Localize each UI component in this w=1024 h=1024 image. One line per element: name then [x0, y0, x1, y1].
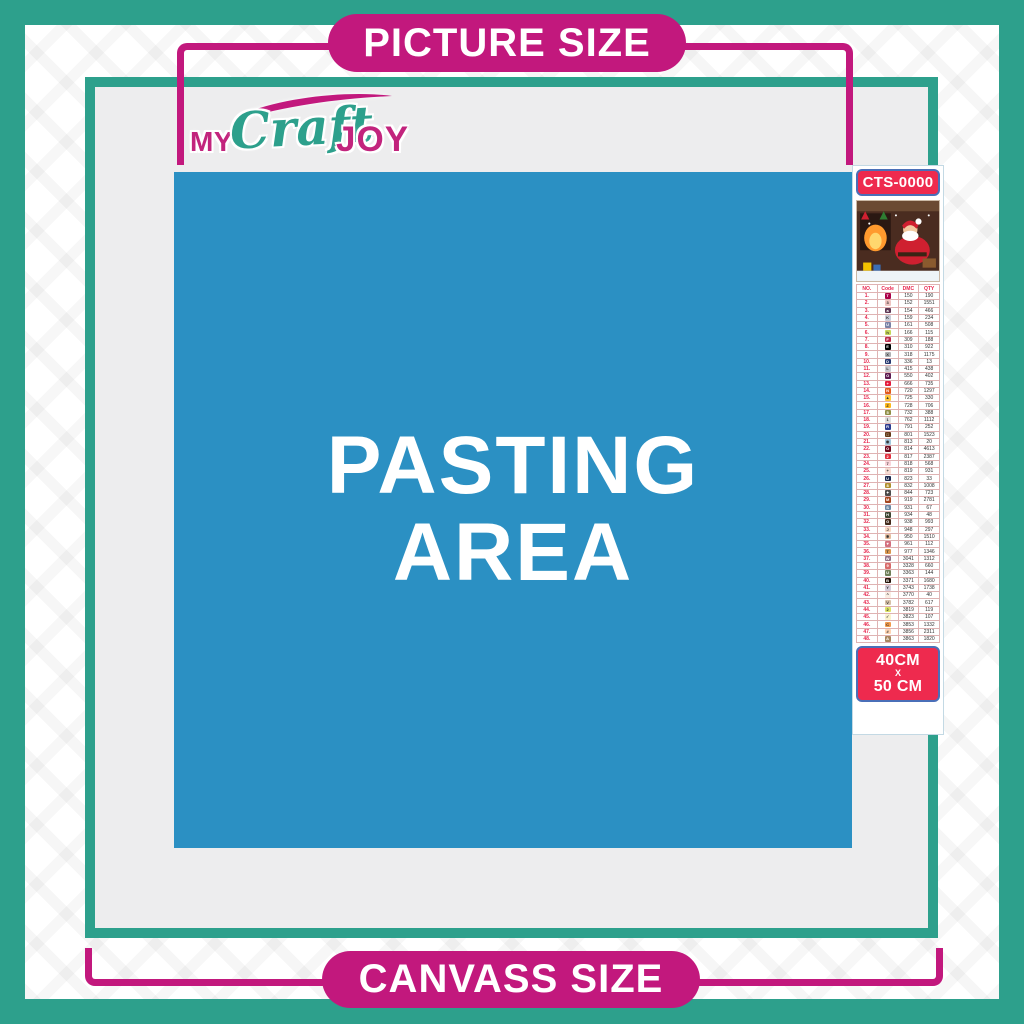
color-symbol-swatch: 7 [885, 461, 891, 467]
dmc-code: 309 [898, 336, 919, 343]
row-number: 27. [857, 482, 878, 489]
row-number: 41. [857, 584, 878, 591]
col-header-code: Code [877, 285, 898, 293]
picture-size-label: PICTURE SIZE [363, 21, 651, 66]
table-row: 45.✓3823107 [857, 614, 940, 621]
color-symbol-swatch: G [885, 519, 891, 525]
table-row: 17.5732388 [857, 409, 940, 416]
color-symbol-swatch: O [885, 446, 891, 452]
picture-size-banner: PICTURE SIZE [328, 14, 686, 72]
symbol-cell: U [877, 322, 898, 329]
symbol-cell: V [877, 599, 898, 606]
dmc-code: 415 [898, 365, 919, 372]
row-number: 1. [857, 293, 878, 300]
symbol-cell: F [877, 336, 898, 343]
table-row: 25.+819931 [857, 468, 940, 475]
row-number: 21. [857, 438, 878, 445]
table-row: 35.♥961112 [857, 541, 940, 548]
row-number: 2. [857, 300, 878, 307]
symbol-cell: T [877, 548, 898, 555]
symbol-cell: 9 [877, 562, 898, 569]
color-symbol-swatch: a [885, 308, 891, 314]
row-number: 17. [857, 409, 878, 416]
row-number: 47. [857, 628, 878, 635]
row-number: 3. [857, 307, 878, 314]
quantity-value: 1820 [919, 635, 940, 642]
dmc-code: 3856 [898, 628, 919, 635]
color-symbol-swatch: J [885, 527, 891, 533]
symbol-cell: N [877, 387, 898, 394]
symbol-cell: 1 [877, 417, 898, 424]
dmc-code: 813 [898, 438, 919, 445]
row-number: 7. [857, 336, 878, 343]
dmc-code: 801 [898, 431, 919, 438]
table-row: 4.K159234 [857, 314, 940, 321]
quantity-value: 1346 [919, 548, 940, 555]
quantity-value: 297 [919, 526, 940, 533]
table-row: 15.▲725330 [857, 395, 940, 402]
dmc-code: 318 [898, 351, 919, 358]
symbol-cell: K [877, 314, 898, 321]
table-row: 2.31521551 [857, 300, 940, 307]
dmc-code: 3853 [898, 621, 919, 628]
symbol-cell: S [877, 504, 898, 511]
pasting-area-line2: AREA [393, 510, 633, 597]
table-row: 46.C38531332 [857, 621, 940, 628]
symbol-cell: + [877, 468, 898, 475]
table-row: 38.93328660 [857, 562, 940, 569]
quantity-value: 190 [919, 293, 940, 300]
color-symbol-swatch: S [885, 505, 891, 511]
quantity-value: 1738 [919, 584, 940, 591]
row-number: 18. [857, 417, 878, 424]
color-symbol-swatch: Y [885, 585, 891, 591]
color-symbol-swatch: U [885, 322, 891, 328]
row-number: 24. [857, 460, 878, 467]
row-number: 28. [857, 490, 878, 497]
row-number: 46. [857, 621, 878, 628]
dmc-code: 823 [898, 475, 919, 482]
dmc-code: 919 [898, 497, 919, 504]
quantity-value: 48 [919, 511, 940, 518]
quantity-value: 1112 [919, 417, 940, 424]
symbol-cell: U [877, 475, 898, 482]
table-row: 18.17621112 [857, 417, 940, 424]
symbol-cell: ✱ [877, 533, 898, 540]
quantity-value: 144 [919, 570, 940, 577]
dmc-code: 3819 [898, 606, 919, 613]
row-number: 12. [857, 373, 878, 380]
dmc-code: 152 [898, 300, 919, 307]
table-row: 33.J948297 [857, 526, 940, 533]
color-symbol-swatch: □ [885, 432, 891, 438]
quantity-value: 2781 [919, 497, 940, 504]
color-symbol-swatch: ^ [885, 592, 891, 598]
color-symbol-swatch: h [885, 330, 891, 336]
quantity-value: 735 [919, 380, 940, 387]
row-number: 43. [857, 599, 878, 606]
color-symbol-swatch: H [885, 512, 891, 518]
symbol-cell: a [877, 307, 898, 314]
quantity-value: 466 [919, 307, 940, 314]
row-number: 14. [857, 387, 878, 394]
quantity-value: 1680 [919, 577, 940, 584]
color-symbol-swatch: 9 [885, 563, 891, 569]
symbol-cell: R [877, 424, 898, 431]
color-symbol-swatch: V [885, 600, 891, 606]
color-symbol-swatch: M [885, 497, 891, 503]
symbol-cell: B [877, 577, 898, 584]
row-number: 15. [857, 395, 878, 402]
quantity-value: 1008 [919, 482, 940, 489]
color-symbol-swatch: W [885, 556, 891, 562]
table-row: 42.^377040 [857, 592, 940, 599]
color-symbol-swatch: ▲ [885, 395, 891, 401]
row-number: 16. [857, 402, 878, 409]
dmc-code: 3823 [898, 614, 919, 621]
color-symbol-swatch: L [885, 366, 891, 372]
color-symbol-swatch: ◉ [885, 439, 891, 445]
row-number: 10. [857, 358, 878, 365]
color-symbol-swatch: B [885, 578, 891, 584]
color-symbol-swatch: ✱ [885, 534, 891, 540]
quantity-value: 402 [919, 373, 940, 380]
canvass-size-label: CANVASS SIZE [359, 957, 664, 1002]
quantity-value: 922 [919, 344, 940, 351]
table-row: 47.#38562311 [857, 628, 940, 635]
dmc-code: 818 [898, 460, 919, 467]
dmc-code: 3328 [898, 562, 919, 569]
row-number: 11. [857, 365, 878, 372]
dmc-code: 732 [898, 409, 919, 416]
col-header-qty: QTY [919, 285, 940, 293]
quantity-value: 67 [919, 504, 940, 511]
symbol-cell: ✓ [877, 614, 898, 621]
table-row: 16.Z728706 [857, 402, 940, 409]
dmc-code: 832 [898, 482, 919, 489]
symbol-cell: A [877, 635, 898, 642]
row-number: 23. [857, 453, 878, 460]
quantity-value: 107 [919, 614, 940, 621]
dmc-code: 3770 [898, 592, 919, 599]
quantity-value: 234 [919, 314, 940, 321]
table-row: 36.T9771346 [857, 548, 940, 555]
symbol-cell: J [877, 526, 898, 533]
size-line2: 50 CM [858, 678, 938, 695]
color-symbol-swatch: O [885, 373, 891, 379]
color-symbol-swatch: Z [885, 403, 891, 409]
color-symbol-swatch: R [885, 424, 891, 430]
table-row: 1.T150190 [857, 293, 940, 300]
row-number: 31. [857, 511, 878, 518]
symbol-cell: 2 [877, 453, 898, 460]
mycraftjoy-logo: MY Craft JOY [184, 96, 414, 172]
dmc-code: 166 [898, 329, 919, 336]
quantity-value: 115 [919, 329, 940, 336]
col-header-dmc: DMC [898, 285, 919, 293]
row-number: 19. [857, 424, 878, 431]
quantity-value: 40 [919, 592, 940, 599]
color-symbol-swatch: 1 [885, 417, 891, 423]
table-row: 6.h166115 [857, 329, 940, 336]
symbol-cell: Z [877, 402, 898, 409]
row-number: 35. [857, 541, 878, 548]
color-symbol-swatch: A [885, 636, 891, 642]
color-symbol-swatch: 2 [885, 454, 891, 460]
symbol-cell: + [877, 380, 898, 387]
dmc-color-table: NO. Code DMC QTY 1.T1501902.315215513.a1… [856, 284, 940, 643]
dmc-code: 814 [898, 446, 919, 453]
table-row: 19.R791252 [857, 424, 940, 431]
quantity-value: 1523 [919, 431, 940, 438]
table-row: 5.U161508 [857, 322, 940, 329]
row-number: 6. [857, 329, 878, 336]
sku-badge: CTS-0000 [856, 169, 940, 196]
symbol-cell: O [877, 446, 898, 453]
color-symbol-swatch: D [885, 359, 891, 365]
color-symbol-swatch: 8 [885, 483, 891, 489]
row-number: 4. [857, 314, 878, 321]
color-symbol-swatch: T [885, 549, 891, 555]
row-number: 42. [857, 592, 878, 599]
row-number: 9. [857, 351, 878, 358]
dmc-code: 977 [898, 548, 919, 555]
table-row: 3.a154466 [857, 307, 940, 314]
quantity-value: 1297 [919, 387, 940, 394]
row-number: 48. [857, 635, 878, 642]
table-header-row: NO. Code DMC QTY [857, 285, 940, 293]
table-row: 48.A38631820 [857, 635, 940, 642]
santa-scene-icon [857, 201, 939, 281]
table-row: 39.U3363144 [857, 570, 940, 577]
symbol-cell: W [877, 555, 898, 562]
canvas-size-badge: 40CM X 50 CM [856, 646, 940, 702]
size-line1: 40CM [858, 652, 938, 669]
table-row: 30.S93167 [857, 504, 940, 511]
dmc-code: 725 [898, 395, 919, 402]
logo-text-my: MY [190, 126, 233, 158]
row-number: 30. [857, 504, 878, 511]
table-row: 22.O8144613 [857, 446, 940, 453]
dmc-code: 3371 [898, 577, 919, 584]
symbol-cell: E [877, 344, 898, 351]
symbol-cell: Y [877, 584, 898, 591]
quantity-value: 2387 [919, 453, 940, 460]
quantity-value: 2311 [919, 628, 940, 635]
row-number: 33. [857, 526, 878, 533]
table-row: 10.D33613 [857, 358, 940, 365]
color-symbol-swatch: K [885, 315, 891, 321]
quantity-value: 388 [919, 409, 940, 416]
dmc-code: 931 [898, 504, 919, 511]
table-row: 9.X3181175 [857, 351, 940, 358]
quantity-value: 993 [919, 519, 940, 526]
color-chart-sidebar: CTS-0000 NO. [852, 165, 944, 735]
dmc-code: 720 [898, 387, 919, 394]
dmc-code: 791 [898, 424, 919, 431]
quantity-value: 617 [919, 599, 940, 606]
row-number: 32. [857, 519, 878, 526]
color-symbol-swatch: U [885, 476, 891, 482]
table-row: 8.E310922 [857, 344, 940, 351]
row-number: 40. [857, 577, 878, 584]
dmc-code: 817 [898, 453, 919, 460]
symbol-cell: M [877, 497, 898, 504]
symbol-cell: D [877, 358, 898, 365]
dmc-code: 161 [898, 322, 919, 329]
symbol-cell: 8 [877, 482, 898, 489]
dmc-code: 762 [898, 417, 919, 424]
symbol-cell: ♥ [877, 541, 898, 548]
color-symbol-swatch: ✓ [885, 614, 891, 620]
symbol-cell: 2 [877, 606, 898, 613]
symbol-cell: ◉ [877, 438, 898, 445]
table-row: 24.7818568 [857, 460, 940, 467]
symbol-cell: 7 [877, 460, 898, 467]
quantity-value: 188 [919, 336, 940, 343]
table-row: 12.O550402 [857, 373, 940, 380]
quantity-value: 119 [919, 606, 940, 613]
symbol-cell: G [877, 519, 898, 526]
table-row: 21.◉81320 [857, 438, 940, 445]
symbol-cell: □ [877, 431, 898, 438]
color-symbol-swatch: T [885, 293, 891, 299]
quantity-value: 568 [919, 460, 940, 467]
dmc-code: 550 [898, 373, 919, 380]
table-row: 11.L415438 [857, 365, 940, 372]
quantity-value: 4613 [919, 446, 940, 453]
quantity-value: 330 [919, 395, 940, 402]
row-number: 34. [857, 533, 878, 540]
dmc-code: 728 [898, 402, 919, 409]
product-template-page: { "banners": { "top": "PICTURE SIZE", "b… [0, 0, 1024, 1024]
dmc-code: 150 [898, 293, 919, 300]
dmc-code: 310 [898, 344, 919, 351]
quantity-value: 1510 [919, 533, 940, 540]
product-thumbnail-image [856, 200, 940, 282]
table-row: 7.F309188 [857, 336, 940, 343]
row-number: 25. [857, 468, 878, 475]
dmc-code: 3363 [898, 570, 919, 577]
color-symbol-swatch: X [885, 352, 891, 358]
table-row: 40.B33711680 [857, 577, 940, 584]
quantity-value: 20 [919, 438, 940, 445]
size-separator: X [858, 669, 938, 678]
table-row: 31.H93448 [857, 511, 940, 518]
row-number: 13. [857, 380, 878, 387]
table-row: 14.N7201297 [857, 387, 940, 394]
color-symbol-swatch: 5 [885, 410, 891, 416]
row-number: 5. [857, 322, 878, 329]
table-row: 44.23819119 [857, 606, 940, 613]
quantity-value: 706 [919, 402, 940, 409]
symbol-cell: O [877, 373, 898, 380]
symbol-cell: C [877, 621, 898, 628]
dmc-code: 666 [898, 380, 919, 387]
symbol-cell: L [877, 365, 898, 372]
dmc-code: 961 [898, 541, 919, 548]
dmc-code: 938 [898, 519, 919, 526]
color-symbol-swatch: 3 [885, 300, 891, 306]
dmc-code: 844 [898, 490, 919, 497]
quantity-value: 1551 [919, 300, 940, 307]
color-symbol-swatch: + [885, 468, 891, 474]
dmc-code: 3863 [898, 635, 919, 642]
symbol-cell: 5 [877, 409, 898, 416]
table-row: 23.28172387 [857, 453, 940, 460]
color-symbol-swatch: F [885, 337, 891, 343]
dmc-code: 3743 [898, 584, 919, 591]
dmc-code: 950 [898, 533, 919, 540]
dmc-code: 3782 [898, 599, 919, 606]
table-row: 34.✱9501510 [857, 533, 940, 540]
symbol-cell: ▲ [877, 395, 898, 402]
quantity-value: 33 [919, 475, 940, 482]
row-number: 45. [857, 614, 878, 621]
dmc-code: 819 [898, 468, 919, 475]
color-symbol-swatch: ♥ [885, 541, 891, 547]
dmc-code: 154 [898, 307, 919, 314]
pasting-area: PASTING AREA [174, 172, 852, 848]
quantity-value: 438 [919, 365, 940, 372]
row-number: 26. [857, 475, 878, 482]
quantity-value: 1332 [919, 621, 940, 628]
pasting-area-line1: PASTING [327, 423, 699, 510]
color-symbol-swatch: + [885, 381, 891, 387]
canvass-size-banner: CANVASS SIZE [322, 951, 700, 1008]
table-row: 28.✦844723 [857, 490, 940, 497]
quantity-value: 1312 [919, 555, 940, 562]
color-symbol-swatch: C [885, 622, 891, 628]
row-number: 44. [857, 606, 878, 613]
dmc-code: 934 [898, 511, 919, 518]
row-number: 39. [857, 570, 878, 577]
quantity-value: 508 [919, 322, 940, 329]
symbol-cell: T [877, 293, 898, 300]
symbol-cell: ✦ [877, 490, 898, 497]
symbol-cell: ^ [877, 592, 898, 599]
color-symbol-swatch: E [885, 344, 891, 350]
symbol-cell: X [877, 351, 898, 358]
table-row: 37.W30411312 [857, 555, 940, 562]
quantity-value: 931 [919, 468, 940, 475]
color-symbol-swatch: ✦ [885, 490, 891, 496]
table-row: 26.U82333 [857, 475, 940, 482]
symbol-cell: H [877, 511, 898, 518]
table-row: 20.□8011523 [857, 431, 940, 438]
symbol-cell: 3 [877, 300, 898, 307]
symbol-cell: # [877, 628, 898, 635]
col-header-no: NO. [857, 285, 878, 293]
table-row: 27.88321008 [857, 482, 940, 489]
color-symbol-swatch: N [885, 388, 891, 394]
quantity-value: 660 [919, 562, 940, 569]
color-symbol-swatch: # [885, 629, 891, 635]
row-number: 20. [857, 431, 878, 438]
symbol-cell: h [877, 329, 898, 336]
color-symbol-swatch: U [885, 570, 891, 576]
row-number: 37. [857, 555, 878, 562]
row-number: 29. [857, 497, 878, 504]
dmc-code: 159 [898, 314, 919, 321]
symbol-cell: U [877, 570, 898, 577]
dmc-code: 3041 [898, 555, 919, 562]
row-number: 36. [857, 548, 878, 555]
table-row: 43.V3782617 [857, 599, 940, 606]
table-row: 13.+666735 [857, 380, 940, 387]
table-row: 41.Y37431738 [857, 584, 940, 591]
row-number: 38. [857, 562, 878, 569]
